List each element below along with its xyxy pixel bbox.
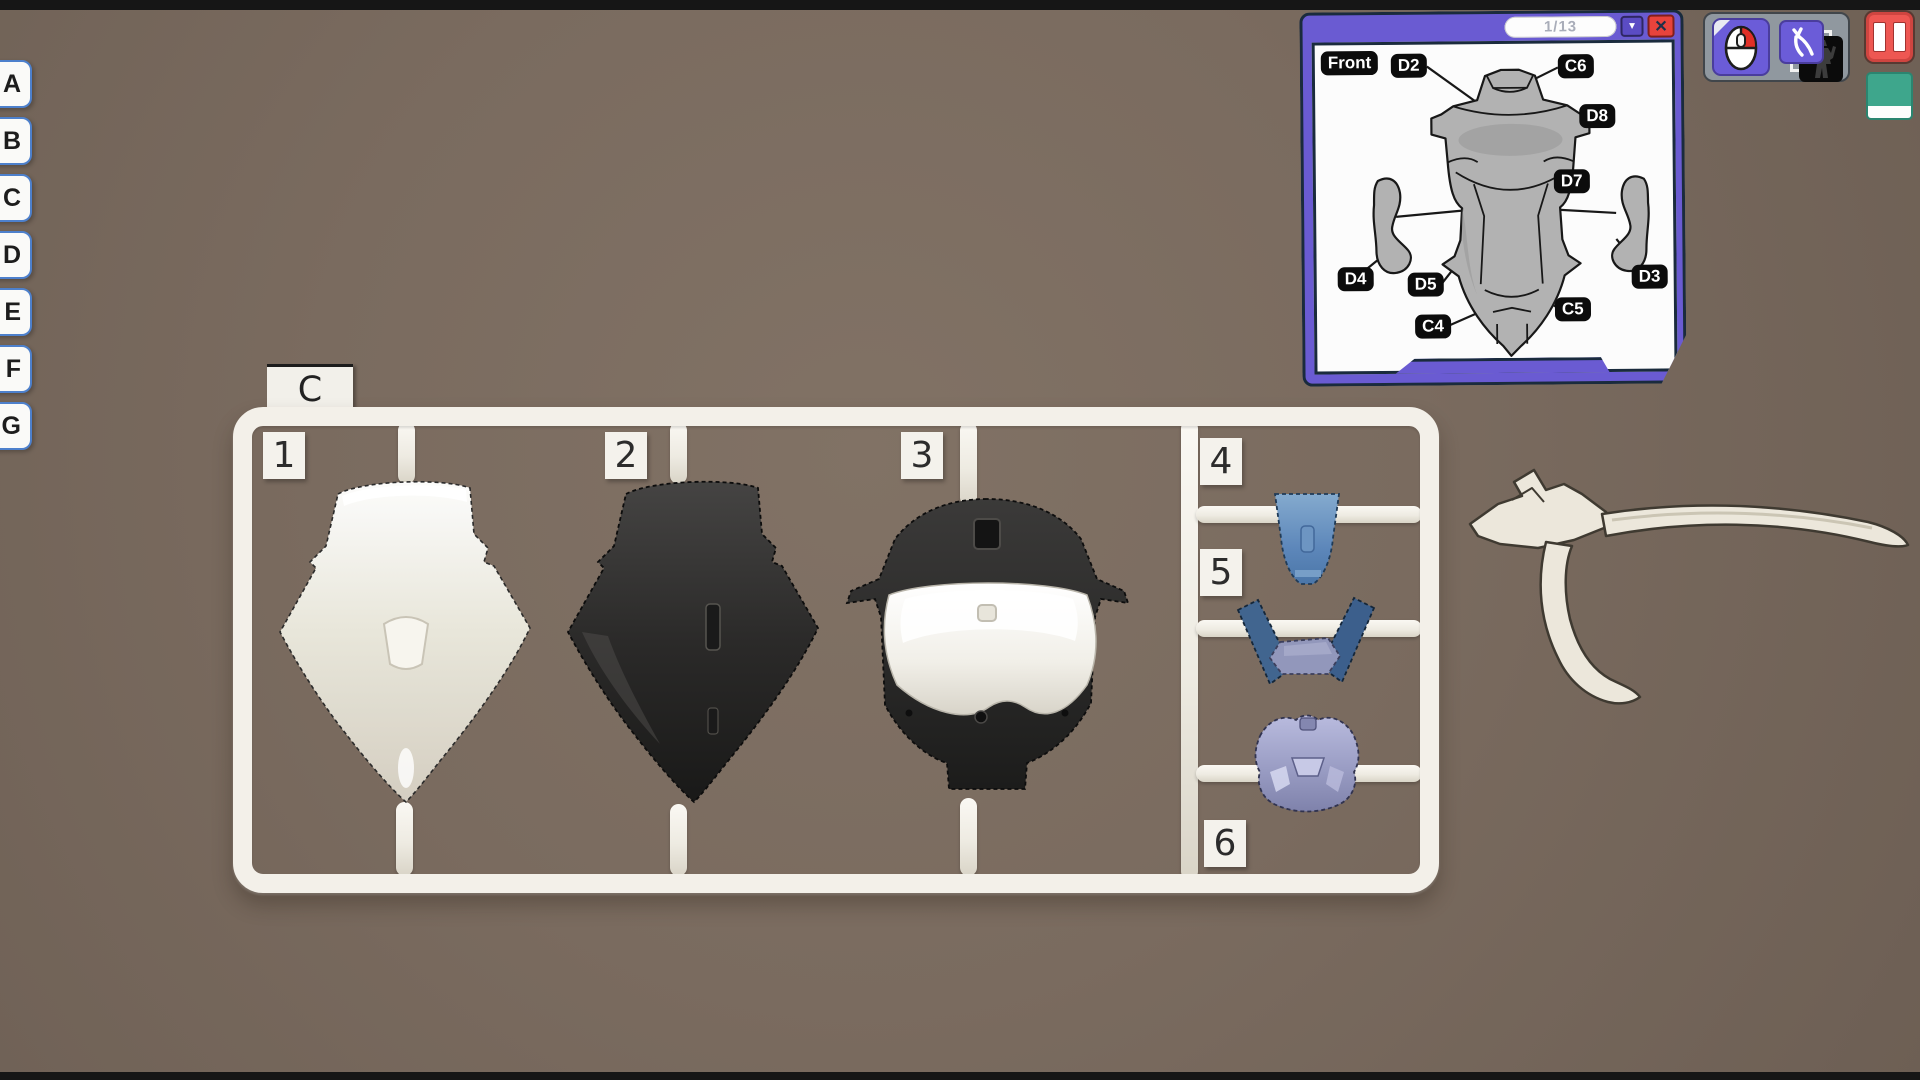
sprue-tab-f[interactable]: F [0, 345, 32, 393]
color-swatch-button[interactable] [1866, 72, 1913, 120]
part-3-dot-left [906, 710, 913, 717]
part-4-slot [1301, 526, 1314, 552]
part-1-lower-highlight [398, 748, 414, 788]
label-front: Front [1321, 51, 1379, 76]
pause-icon-bar2 [1893, 22, 1906, 52]
label-d4: D4 [1338, 267, 1374, 291]
part-6-vent-piece[interactable] [1246, 706, 1368, 814]
manual-page-content: Front D2 C6 D8 D7 D4 D5 D3 C4 C5 [1312, 39, 1678, 374]
part-2-black-shell[interactable] [560, 472, 825, 814]
nippers-head [1470, 470, 1614, 548]
label-d8: D8 [1579, 104, 1615, 128]
part-1-center-bump [384, 617, 428, 669]
part-3-dot-right [1062, 710, 1069, 717]
mouse-icon [1723, 22, 1759, 72]
close-icon: ✕ [1654, 16, 1668, 36]
sprue-tab-e[interactable]: E [0, 288, 32, 336]
part-6-vent [1292, 758, 1324, 776]
label-d2: D2 [1391, 54, 1427, 78]
nipper-tool-button[interactable] [1779, 20, 1824, 64]
side-piece-d4 [1373, 178, 1411, 273]
part-4-bottom-strip [1295, 570, 1321, 577]
label-d5: D5 [1408, 272, 1444, 296]
sprue-tab-g[interactable]: G [0, 402, 32, 450]
label-d3: D3 [1632, 264, 1668, 288]
part-4-blue-piece[interactable] [1265, 488, 1349, 592]
part-1-white-shell[interactable] [272, 472, 537, 814]
manual-page-indicator: 1/13 [1504, 16, 1616, 38]
part-5-center-plate [1270, 638, 1340, 674]
part-3-chest-armor[interactable] [845, 495, 1130, 810]
nippers-icon [1786, 26, 1818, 58]
sprue-tab-b[interactable]: B [0, 117, 32, 165]
part-3-top-vent [974, 519, 1000, 549]
manual-window[interactable]: 1/13 ▼ ✕ [1299, 9, 1686, 386]
part-3-lower-peg [975, 711, 987, 723]
swatch-strip [1868, 106, 1911, 118]
label-c5: C5 [1555, 297, 1591, 321]
pause-icon [1873, 22, 1886, 52]
mouse-scroll-wheel [1737, 34, 1745, 47]
pause-button[interactable] [1866, 12, 1913, 62]
part-3-chest-peg [978, 605, 996, 621]
part-2-slot-lower [708, 708, 718, 734]
manual-titlebar[interactable]: 1/13 ▼ ✕ [1302, 12, 1680, 42]
nippers-handle-curved [1541, 542, 1640, 703]
letterbox-bottom [0, 1072, 1920, 1080]
chevron-down-icon: ▼ [1627, 21, 1637, 32]
label-d7: D7 [1554, 169, 1590, 193]
side-piece-d3 [1611, 176, 1649, 271]
label-c4: C4 [1415, 314, 1451, 338]
part-2-slot-upper [706, 604, 720, 650]
sprue-tab-c[interactable]: C [0, 174, 32, 222]
manual-dropdown-button[interactable]: ▼ [1620, 16, 1643, 37]
manual-footer-tab [1395, 357, 1609, 374]
manual-close-button[interactable]: ✕ [1647, 14, 1674, 37]
sprue-sheet-label: C [267, 364, 353, 413]
torso-diagram [1315, 42, 1675, 371]
letterbox-top [0, 0, 1920, 10]
nippers-pivot [1795, 34, 1800, 39]
nippers-tool[interactable] [1452, 462, 1912, 707]
part-6-notch [1300, 718, 1316, 730]
game-screen: A B C D E F G C 1 2 3 4 5 6 [0, 0, 1920, 1080]
sprue-tab-a[interactable]: A [0, 60, 32, 108]
sprue-tab-d[interactable]: D [0, 231, 32, 279]
part-5-collar-pieces[interactable] [1228, 596, 1384, 692]
label-c6: C6 [1558, 54, 1594, 78]
mouse-controls-button[interactable] [1712, 18, 1770, 76]
